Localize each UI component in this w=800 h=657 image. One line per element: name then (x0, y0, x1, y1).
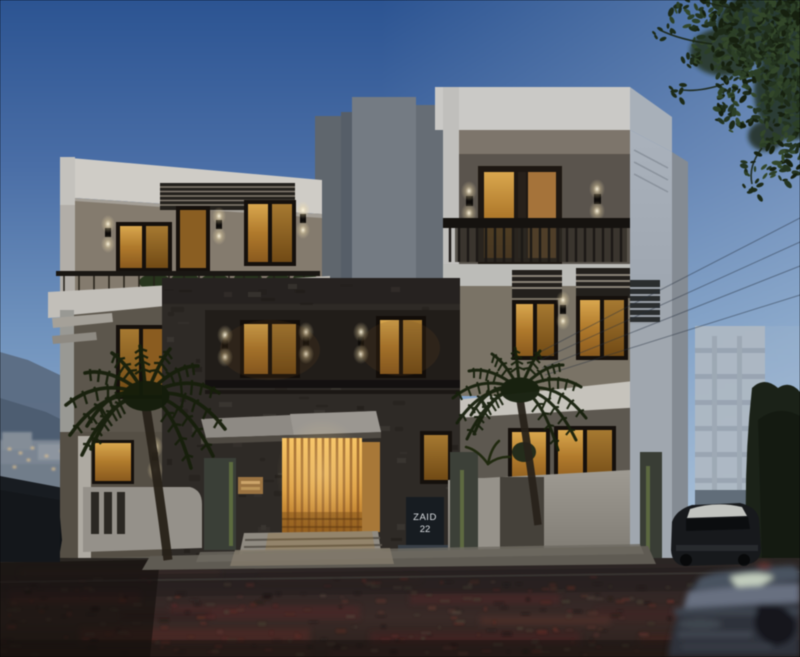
svg-text:ZAID: ZAID (413, 512, 437, 523)
svg-text:22: 22 (420, 524, 431, 535)
